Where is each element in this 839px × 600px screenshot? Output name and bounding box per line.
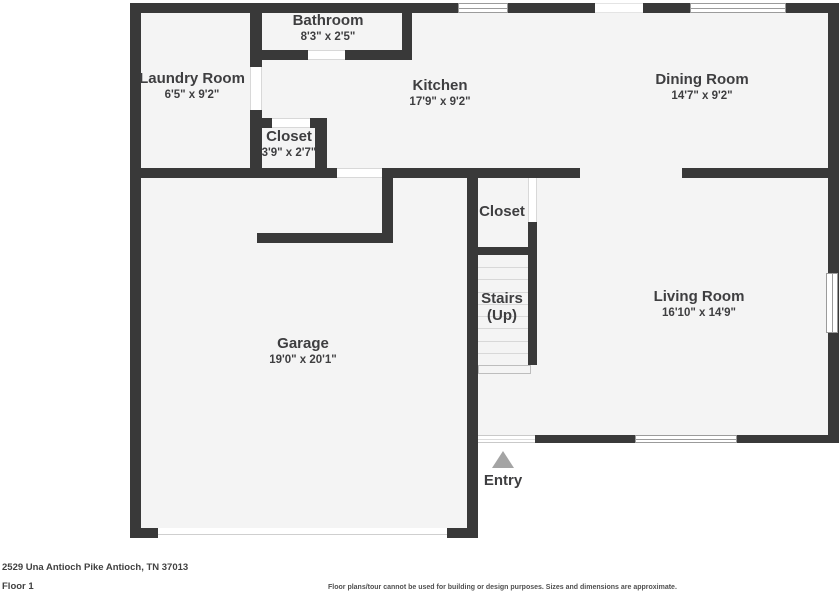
wall bbox=[130, 528, 158, 538]
wall bbox=[478, 247, 528, 255]
door-opening bbox=[528, 178, 537, 222]
room-label-laundry-room: Laundry Room6'5" x 9'2" bbox=[139, 70, 245, 102]
room-label-closet-hall: Closet3'9" x 2'7" bbox=[262, 128, 317, 160]
room-label-entry: Entry bbox=[484, 472, 522, 489]
room-dimensions: 16'10" x 14'9" bbox=[654, 306, 745, 320]
room-dimensions: 19'0" x 20'1" bbox=[269, 353, 337, 367]
floor-number-label: Floor 1 bbox=[2, 581, 34, 592]
room-dimensions: 14'7" x 9'2" bbox=[655, 89, 748, 103]
door-opening bbox=[337, 168, 382, 178]
address-text: 2529 Una Antioch Pike Antioch, TN 37013 bbox=[2, 562, 188, 573]
window bbox=[458, 3, 508, 13]
floor-plan-page: Bathroom8'3" x 2'5"Laundry Room6'5" x 9'… bbox=[0, 0, 839, 600]
garage-door-opening bbox=[158, 528, 447, 538]
room-name: Stairs bbox=[481, 290, 523, 307]
room-label-closet-stairs: Closet bbox=[479, 203, 525, 220]
wall bbox=[528, 222, 537, 365]
wall bbox=[682, 168, 839, 178]
room-label-stairs: Stairs(Up) bbox=[481, 290, 523, 325]
room-label-living-room: Living Room16'10" x 14'9" bbox=[654, 288, 745, 320]
room-name: Bathroom bbox=[293, 12, 364, 29]
wall bbox=[737, 435, 839, 443]
room-name: Entry bbox=[484, 472, 522, 489]
room-name: Kitchen bbox=[409, 77, 470, 94]
stairs-landing bbox=[478, 365, 531, 374]
stair-tread-line bbox=[478, 353, 528, 354]
room-label-bathroom: Bathroom8'3" x 2'5" bbox=[293, 12, 364, 44]
wall bbox=[130, 168, 337, 178]
room-name: Closet bbox=[262, 128, 317, 145]
stair-tread-line bbox=[478, 341, 528, 342]
room-label-dining-room: Dining Room14'7" x 9'2" bbox=[655, 71, 748, 103]
wall bbox=[250, 50, 308, 60]
floor-plan-canvas: Bathroom8'3" x 2'5"Laundry Room6'5" x 9'… bbox=[0, 0, 839, 600]
door-opening bbox=[272, 118, 310, 128]
floor-area bbox=[467, 3, 839, 443]
room-dimensions: 3'9" x 2'7" bbox=[262, 146, 317, 160]
room-label-kitchen: Kitchen17'9" x 9'2" bbox=[409, 77, 470, 109]
room-name: Living Room bbox=[654, 288, 745, 305]
wall bbox=[257, 233, 393, 243]
window bbox=[635, 435, 737, 443]
stair-tread-line bbox=[478, 267, 528, 268]
wall bbox=[535, 435, 636, 443]
disclaimer-text: Floor plans/tour cannot be used for buil… bbox=[328, 584, 677, 591]
wall bbox=[315, 118, 327, 170]
room-dimensions: 8'3" x 2'5" bbox=[293, 30, 364, 44]
room-label-garage: Garage19'0" x 20'1" bbox=[269, 335, 337, 367]
room-name: Closet bbox=[479, 203, 525, 220]
wall-opening bbox=[595, 3, 643, 13]
window bbox=[690, 3, 786, 13]
room-name: Laundry Room bbox=[139, 70, 245, 87]
wall bbox=[402, 3, 412, 60]
room-name: Garage bbox=[269, 335, 337, 352]
wall bbox=[382, 168, 580, 178]
stair-tread-line bbox=[478, 279, 528, 280]
wall bbox=[382, 168, 393, 243]
room-dimensions: (Up) bbox=[481, 307, 523, 325]
door-opening bbox=[250, 67, 262, 110]
wall bbox=[467, 168, 478, 538]
stair-tread-line bbox=[478, 328, 528, 329]
wall bbox=[250, 118, 272, 128]
room-dimensions: 6'5" x 9'2" bbox=[139, 88, 245, 102]
entry-door bbox=[478, 435, 535, 443]
window bbox=[826, 273, 838, 333]
entry-arrow-icon bbox=[492, 451, 514, 468]
door-opening bbox=[308, 50, 345, 60]
room-name: Dining Room bbox=[655, 71, 748, 88]
room-dimensions: 17'9" x 9'2" bbox=[409, 95, 470, 109]
wall bbox=[828, 3, 839, 443]
